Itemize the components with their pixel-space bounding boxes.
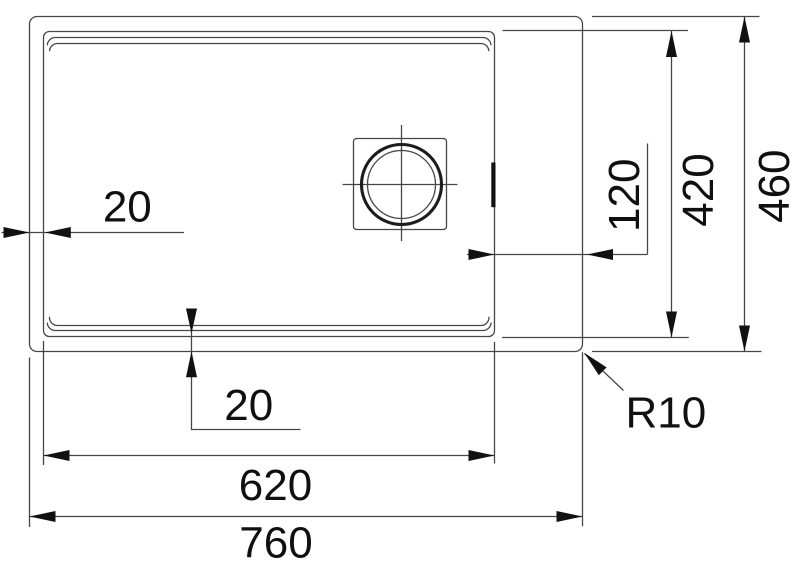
svg-text:20: 20	[224, 381, 273, 430]
svg-text:760: 760	[239, 519, 312, 568]
svg-text:R10: R10	[626, 389, 707, 438]
svg-text:20: 20	[103, 183, 152, 232]
svg-text:120: 120	[600, 159, 649, 232]
svg-text:620: 620	[239, 461, 312, 510]
svg-text:420: 420	[674, 153, 723, 226]
svg-text:460: 460	[750, 149, 792, 222]
